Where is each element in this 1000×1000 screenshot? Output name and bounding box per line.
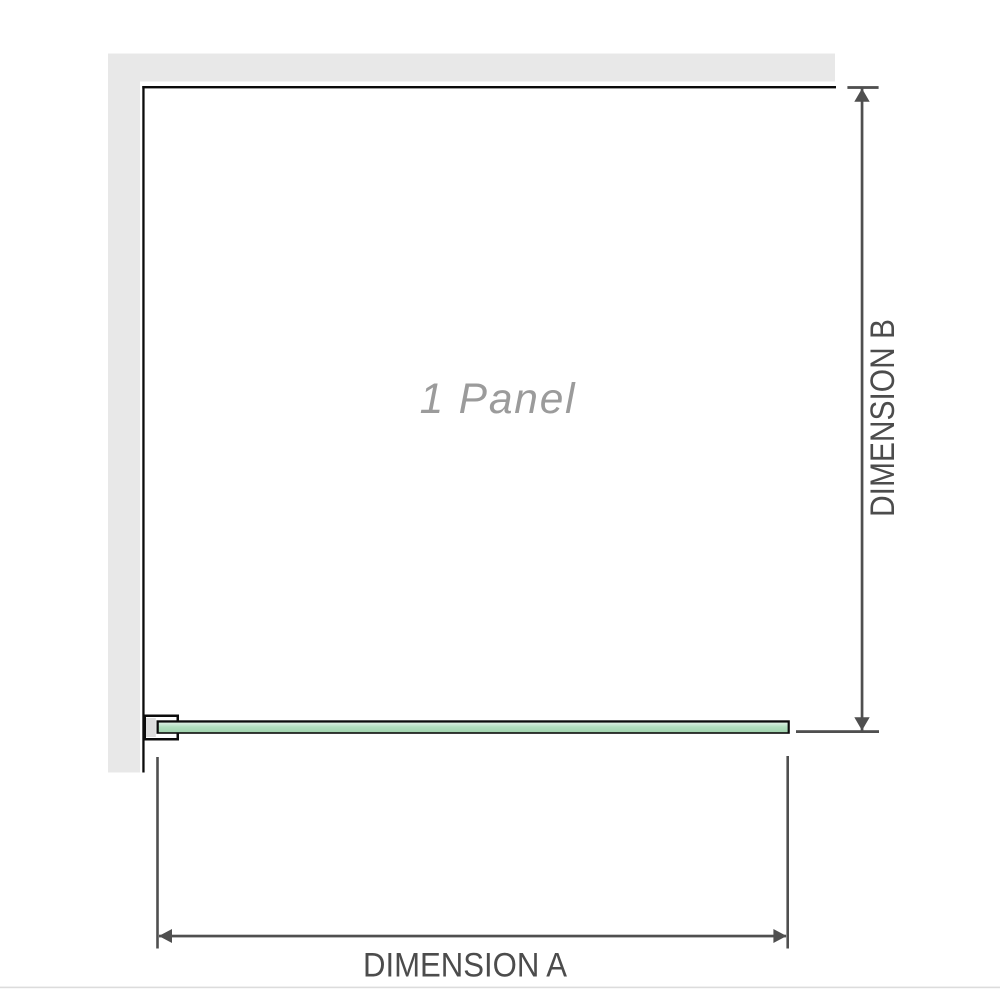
svg-text:1 Panel: 1 Panel <box>420 376 577 423</box>
svg-text:DIMENSION B: DIMENSION B <box>864 319 902 517</box>
svg-text:DIMENSION A: DIMENSION A <box>363 946 567 984</box>
